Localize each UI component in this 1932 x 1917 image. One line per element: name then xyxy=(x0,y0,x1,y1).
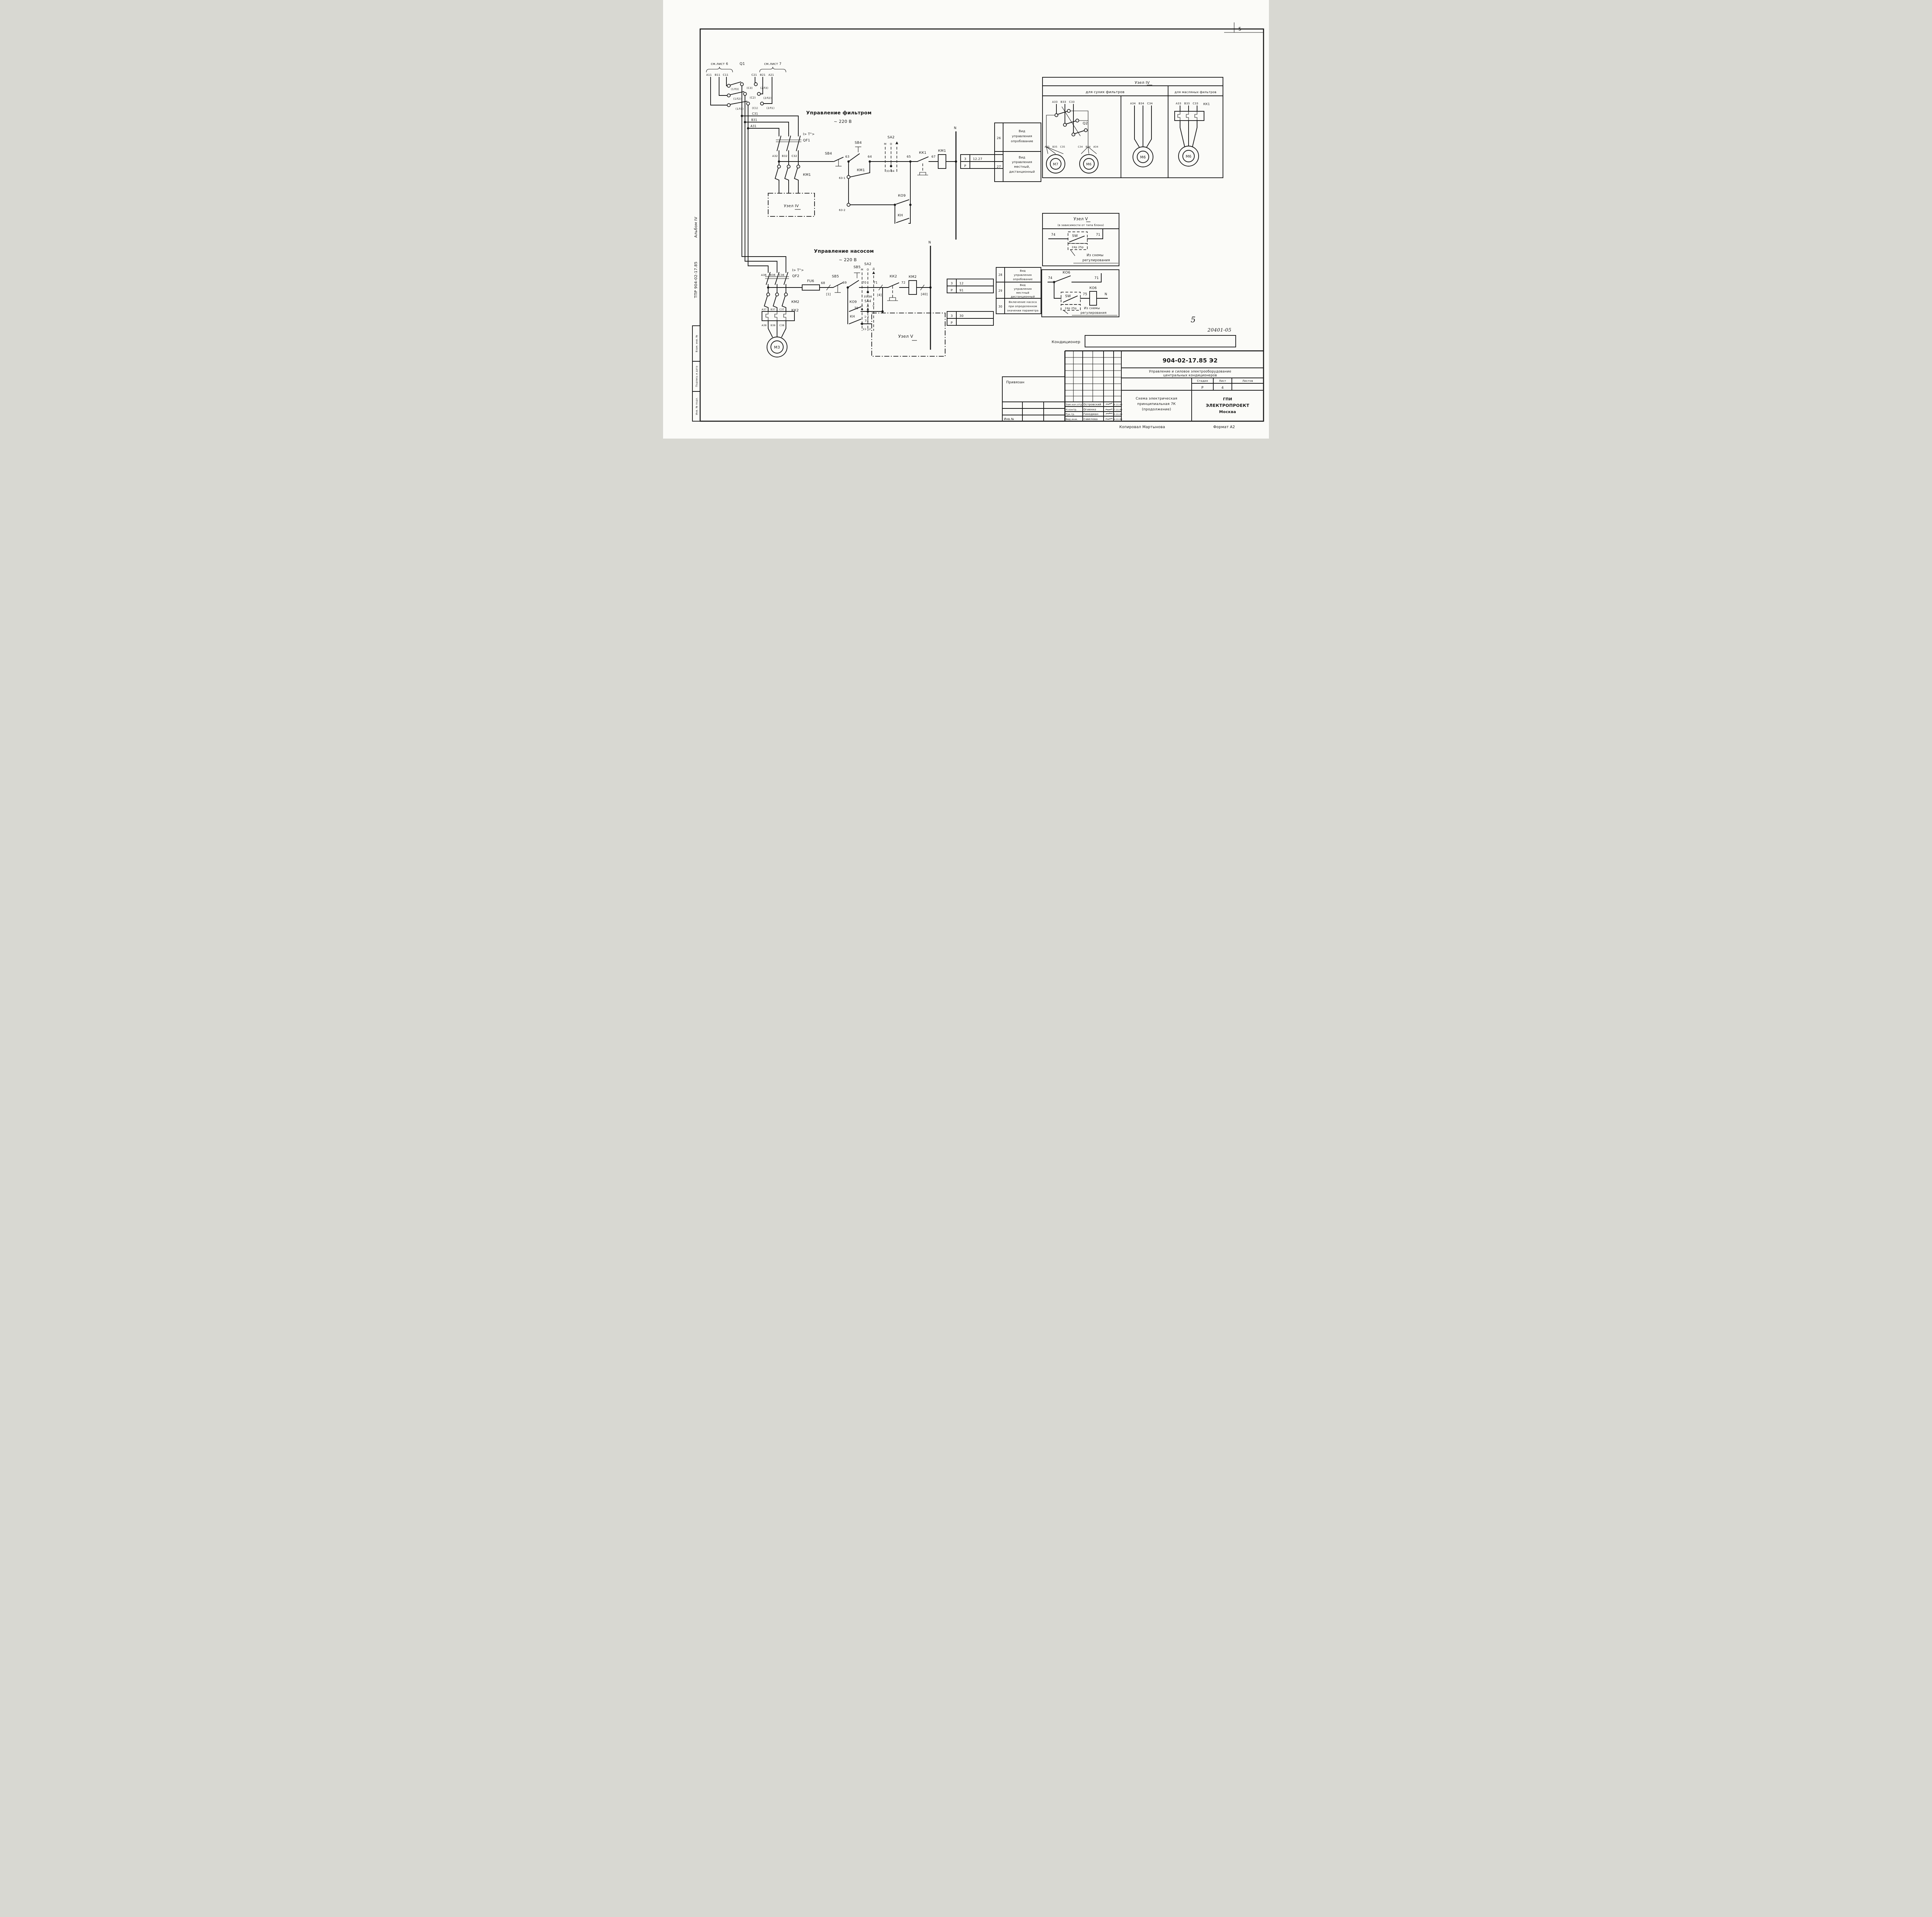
node-65: 65 xyxy=(907,155,911,158)
inv-number-label: Инв.№ xyxy=(1004,417,1014,421)
row-28-num: 28 xyxy=(998,273,1002,277)
m6a-term-a34: А34 xyxy=(1094,146,1099,148)
u4r-b33: В33 xyxy=(1184,102,1190,105)
ref1-r-label: Р xyxy=(951,289,952,292)
u4m-c34: С34 xyxy=(1147,102,1153,105)
phase-buses: С31 В31 А31 xyxy=(741,86,798,270)
sa2-pos-o: О xyxy=(890,143,892,146)
ko6-coil-label: КО6 xyxy=(1090,286,1097,290)
handwritten-code: 20401-05 xyxy=(1207,327,1231,333)
qf2-pole-b36: В36 xyxy=(770,274,776,277)
row-30-line1: Включение насоса xyxy=(1009,301,1037,304)
neutral-n-filter: N xyxy=(954,126,957,130)
row-26-line3: опробование xyxy=(1011,139,1033,143)
sheets-header: Листов xyxy=(1242,379,1253,383)
conditioner-area: 5 20401-05 Кондиционер xyxy=(1052,315,1236,347)
sa2p-m: М xyxy=(861,268,863,271)
node-67: 67 xyxy=(932,155,936,158)
contact-1l1: (1Л1) xyxy=(736,107,744,111)
sa2-pos-m: М xyxy=(884,143,886,146)
kk2-contact-label: КК2 xyxy=(889,275,897,279)
pump-ref-table-1: 3 12 Р 91 xyxy=(947,279,993,293)
date-3: 15.11.83 xyxy=(1112,413,1122,416)
row-30-num: 30 xyxy=(998,305,1002,308)
ko9-contact-label: КО9 xyxy=(898,194,906,198)
row-28-line2: управления xyxy=(1014,274,1032,277)
ko6-sw-label: SW xyxy=(1065,294,1071,298)
node-63-2: 63-2 xyxy=(839,209,845,212)
ko6-note-line1: Из схемы xyxy=(1084,306,1100,310)
u4r-a33: А33 xyxy=(1176,102,1181,105)
ref1-z-label: 3 xyxy=(951,282,952,285)
row-29-line2: управления xyxy=(1014,287,1032,291)
title-block: Привязан Инв.№ xyxy=(1002,351,1264,421)
term-b21: В21 xyxy=(760,73,765,77)
motor-m6b: М6 xyxy=(1140,155,1146,160)
sheet-header: Лист xyxy=(1219,379,1226,383)
term-a21: А21 xyxy=(769,73,774,77)
marker-4: [4] xyxy=(877,293,882,297)
ko6-detail-box: 74 КО6 71 SW 75 КО6 N 24р 25р Из схемы р… xyxy=(1042,270,1119,317)
node-72: 72 xyxy=(901,281,906,284)
name-ostrovsky: Островский xyxy=(1083,403,1101,406)
marker-1: [1] xyxy=(826,293,831,296)
m6a-term-c34: С34 xyxy=(1078,146,1083,148)
contact-1l2: (1Л2) xyxy=(733,97,742,100)
term-c11: С11 xyxy=(723,73,729,77)
ref2-z-label: 3 xyxy=(951,314,952,318)
row-29-line3: местный xyxy=(1016,291,1029,294)
org-line3: Москва xyxy=(1219,410,1236,414)
u4-b33: В33 xyxy=(1061,100,1066,104)
u5-note-line2: регулирования xyxy=(1082,259,1110,262)
km1-aux-label: КМ1 xyxy=(857,168,865,172)
u5-node-74: 74 xyxy=(1051,233,1055,237)
org-line1: ГПИ xyxy=(1223,397,1232,401)
row-30-line3: значении параметра xyxy=(1007,309,1038,312)
row-29-line4: дистанционный xyxy=(1011,295,1035,298)
contact-1l3: (1Л3) xyxy=(731,88,739,91)
filter-control-row: SB4 63 SB4 64 63-1 КМ1 63-2 SA2 М О xyxy=(778,126,957,240)
row-28-line3: опробование xyxy=(1013,278,1033,281)
sb4-no-label: SB4 xyxy=(855,141,862,145)
pump-voltage: ~ 220 В xyxy=(839,257,857,262)
term-b11: В11 xyxy=(715,73,720,77)
uzel4-dry-q2-section: А33 В33 С33 Q2 А35 В35 С35 М7 С34 В34 А3… xyxy=(1045,100,1099,173)
q1-label: Q1 xyxy=(740,62,745,66)
scheme-name-line3: (продолжение) xyxy=(1142,408,1171,412)
m3-term-b38: В38 xyxy=(770,324,776,327)
km1-coil-label: КМ1 xyxy=(938,149,946,153)
sa2-selector-filter: SA2 М О Д 33-34 xyxy=(884,136,898,173)
node-69: 69 xyxy=(843,281,847,284)
m3-term-a38: А38 xyxy=(762,324,767,327)
contact-2l2: (2Л2) xyxy=(764,97,772,100)
drawing-sheet: 5 Взам. инв. № Подпись и дата Инв. № под… xyxy=(663,0,1269,439)
m6a-term-b34: В34 xyxy=(1086,146,1091,148)
side-tpr-label: ТПР 904-02-17.85 xyxy=(694,262,698,299)
pump-ref-table-2: 3 30 Р xyxy=(947,311,993,325)
u4m-a34: А34 xyxy=(1130,102,1136,105)
sb5-no-label: SB5 xyxy=(854,265,861,269)
m7-term-c35: С35 xyxy=(1060,146,1065,148)
motor-m3: М3 xyxy=(774,345,780,350)
signature-4 xyxy=(1105,418,1112,419)
node-74: 74 xyxy=(865,319,869,323)
u4-c33: С33 xyxy=(1069,100,1075,104)
sheet-value: 4 xyxy=(1221,386,1224,390)
qf1-pole-c32: С32 xyxy=(791,155,797,158)
scheme-name-line2: принципиальная 7К xyxy=(1137,402,1176,406)
uzel4-oil-section: А33 В33 С33 КК1 М6 xyxy=(1175,102,1210,166)
corner-page-number: 5 xyxy=(1238,26,1242,32)
doc-code: 904-02-17.85 Э2 xyxy=(1163,357,1218,364)
qf1-release-label: I> T°> xyxy=(803,133,815,136)
row-27-line3: местный, xyxy=(1014,165,1030,168)
ko6-note-line2: регулирования xyxy=(1080,311,1106,315)
stage-table: Стадия Лист Листов Р 4 xyxy=(1192,378,1264,390)
ko6-node-75: 75 xyxy=(1083,293,1087,296)
u4r-c33: С33 xyxy=(1193,102,1199,105)
role-zam-nach: Зам.нач.отд xyxy=(1066,403,1082,406)
node-63: 63 xyxy=(845,155,850,158)
kk2-term-b37: В37 xyxy=(770,308,776,311)
ref-z-value: 12.27 xyxy=(973,157,982,161)
sa2-contact-33-34: 33-34 xyxy=(886,170,895,173)
uzel5-subtitle: (в зависимости от типа блока) xyxy=(1058,224,1104,227)
kk2-term-c37: С37 xyxy=(779,308,784,311)
motor-m7: М7 xyxy=(1053,163,1058,167)
m3-term-c38: С38 xyxy=(779,324,784,327)
contact-2l3: (2Л3) xyxy=(760,87,769,90)
row-26-num: 26 xyxy=(997,136,1001,140)
ko6-neutral-label: N xyxy=(1105,293,1107,296)
filter-title: Управление фильтром xyxy=(806,110,871,116)
name-savelova: Савелова xyxy=(1083,418,1098,421)
u5-node-71: 71 xyxy=(1096,233,1100,237)
fu6-label: FU6 xyxy=(807,279,814,283)
qf2-breaker: А36 В36 С36 I> T°> QF2 xyxy=(761,269,804,293)
see-sheet-6-label: см.лист 6 xyxy=(711,62,728,66)
sa4-d: Д xyxy=(867,304,869,308)
ko6-contact-label: КО6 xyxy=(1063,271,1070,275)
kk1-label: КК1 xyxy=(919,151,926,155)
row-27-line4: дистанционный xyxy=(1009,170,1035,173)
term-c21: С21 xyxy=(752,73,757,77)
sa2-contact-35-36: 35-36 xyxy=(864,295,872,298)
see-sheet-7-label: см.лист 7 xyxy=(764,62,782,66)
ref-z-label: 3 xyxy=(964,157,966,161)
contact-c3: (С3) xyxy=(747,87,753,90)
sb5-nc-label: SB5 xyxy=(832,275,839,279)
conditioner-value-box xyxy=(1085,335,1236,347)
qf2-label: QF2 xyxy=(792,274,799,278)
bus-c31: С31 xyxy=(752,112,758,116)
stamp-inv-podl: Инв. № подл. xyxy=(696,397,698,415)
marker-40: [40] xyxy=(921,293,927,296)
sa4-label: SA4 xyxy=(864,299,871,303)
stage-header: Стадия xyxy=(1197,379,1208,383)
stamp-vzam-inv: Взам. инв. № xyxy=(696,335,698,352)
q1-incoming-switch: см.лист 6 Q1 см.лист 7 А11 В11 С11 С21 В… xyxy=(706,62,786,111)
sa4-c: С xyxy=(872,304,874,308)
uzel4-title: Узел IV xyxy=(1135,81,1150,85)
format-label: Формат А2 xyxy=(1213,425,1235,429)
row-27-num: 27 xyxy=(997,165,1001,168)
uzel4-dry-header: для сухих фильтров xyxy=(1086,90,1125,94)
u4m-b34: В34 xyxy=(1139,102,1145,105)
schematic-canvas: 5 Взам. инв. № Подпись и дата Инв. № под… xyxy=(663,0,1269,439)
name-ogienko: Огиенко xyxy=(1083,408,1096,411)
u4r-kk1-label: КК1 xyxy=(1203,102,1210,106)
filter-voltage: ~ 220 В xyxy=(834,119,852,124)
row-29-num: 29 xyxy=(998,289,1002,293)
sa4-contact-11-12: 11-12 xyxy=(862,328,871,331)
ko6-node-71: 71 xyxy=(1094,276,1099,280)
uzel5-ref-box: Узел V xyxy=(872,313,945,356)
bus-b31: В31 xyxy=(751,118,757,122)
qf1-label: QF1 xyxy=(803,139,810,143)
sheet-frame: 5 Взам. инв. № Подпись и дата Инв. № под… xyxy=(692,22,1264,429)
filter-circuit: Управление фильтром ~ 220 В I> T°> QF1 А… xyxy=(768,110,1041,240)
neutral-n-pump: N xyxy=(929,241,931,245)
node-70: 70 xyxy=(862,281,867,284)
m7-term-b35: В35 xyxy=(1053,146,1058,148)
qf2-pole-a36: А36 xyxy=(761,274,767,277)
kk2-block-label: КК2 xyxy=(791,309,799,313)
qf1-pole-a32: А32 xyxy=(772,155,778,158)
doc-subject-line2: центральных кондиционеров xyxy=(1163,374,1217,378)
filter-info-table: 26 Вид управления опробование 27 Вид упр… xyxy=(995,123,1041,182)
node-63-1: 63-1 xyxy=(839,177,845,180)
term-a11: А11 xyxy=(706,73,712,77)
ko6-node-74: 74 xyxy=(1048,276,1052,280)
q2-label: Q2 xyxy=(1083,122,1088,126)
privyazan-label: Привязан xyxy=(1006,381,1024,384)
row-26-line2: управления xyxy=(1012,134,1032,138)
kk2-term-a37: А37 xyxy=(762,308,767,311)
row-27-line1: Вид xyxy=(1019,156,1026,159)
scheme-name-line1: Схема электрическая xyxy=(1136,397,1177,401)
node-68: 68 xyxy=(821,281,825,285)
sa2-pump-label: SA2 xyxy=(864,262,872,266)
sa2-label: SA2 xyxy=(888,136,895,139)
sb4-nc-label: SB4 xyxy=(825,152,832,156)
org-line2: ЭЛЕКТРОПРОЕКТ xyxy=(1206,403,1250,408)
ref-r-label: Р xyxy=(964,164,966,168)
conditioner-label: Кондиционер xyxy=(1052,340,1080,344)
role-ved-inzh: Вед.инж. xyxy=(1066,418,1078,421)
motor-m6c: М6 xyxy=(1186,155,1192,159)
u4-a33: А33 xyxy=(1052,100,1058,104)
contact-c1: (С1) xyxy=(752,107,758,110)
km1-main-label: КМ1 xyxy=(803,173,811,177)
kn-pump-label: КН xyxy=(850,315,855,319)
row-29-line1: Вид xyxy=(1020,284,1026,287)
u5-sw-label: SW xyxy=(1072,234,1078,238)
row-28-line1: Вид xyxy=(1020,269,1026,272)
side-album-label: Альбом IV xyxy=(694,217,698,238)
u5-note-line1: Из схемы xyxy=(1087,253,1104,257)
qf2-pole-c36: С36 xyxy=(779,274,784,277)
uzel4-oil-header: для масляных фильтров xyxy=(1175,90,1217,94)
date-2: 17.11.83 xyxy=(1112,409,1122,411)
date-1: 16.11.83 xyxy=(1112,404,1122,406)
sa4-contact-1-2: 1-2 xyxy=(864,315,869,318)
pump-power-branch: КМ2 КК2 А37 В37 С37 А38 В38 С38 М3 xyxy=(762,293,799,357)
contact-c2: (С2) xyxy=(750,96,756,99)
node-71: 71 xyxy=(874,281,878,284)
role-ruk-gr: Рук.гр. xyxy=(1066,413,1075,416)
uzel5-title: Узел V xyxy=(1073,217,1088,221)
uzel5-ref-label: Узел V xyxy=(898,334,913,339)
stage-value: Р xyxy=(1201,386,1204,390)
signature-1 xyxy=(1106,403,1112,405)
motor-m6a: М6 xyxy=(1086,163,1092,167)
node-64: 64 xyxy=(868,155,872,158)
row-27-line2: управления xyxy=(1012,160,1032,164)
pump-circuit: Управление насосом ~ 220 В А36 В36 С36 I… xyxy=(761,241,1041,357)
name-ginodman: Гинодман xyxy=(1083,413,1099,416)
kn-contact-label: КН xyxy=(898,214,903,218)
sa2p-o: О xyxy=(867,268,869,271)
pump-title: Управление насосом xyxy=(814,248,874,254)
signature-3 xyxy=(1106,413,1112,414)
ref1-z-value: 12 xyxy=(959,282,964,285)
u5-plug-label: 24р 25р xyxy=(1072,246,1084,249)
km2-main-label: КМ2 xyxy=(791,300,799,304)
node-79: 79 xyxy=(854,306,859,310)
uzel5-detail-box: Узел V (в зависимости от типа блока) 74 … xyxy=(1043,213,1119,266)
row-30-line2: при определенном xyxy=(1009,305,1037,308)
kk1-contact: КК1 67 xyxy=(910,151,938,175)
contact-2l1: (2Л1) xyxy=(767,107,775,110)
pump-info-table: 28 Вид управления опробование 29 Вид упр… xyxy=(996,267,1041,314)
ref2-z-value: 30 xyxy=(959,314,964,318)
role-n-kontr: Н.контр. xyxy=(1066,408,1077,411)
row-26-line1: Вид xyxy=(1019,129,1026,133)
m7-term-a35: А35 xyxy=(1045,146,1050,148)
km1-main-contacts: КМ1 Узел IV xyxy=(768,165,815,216)
stamp-podpis-data: Подпись и дата xyxy=(696,366,698,387)
signature-2 xyxy=(1105,409,1112,410)
km2-coil-label: КМ2 xyxy=(909,275,917,279)
copied-by-label: Копировал Мартынова xyxy=(1119,425,1165,429)
doc-subject-line1: Управление и силовое электрооборудование xyxy=(1149,370,1231,374)
sa2p-d: Д xyxy=(872,267,875,270)
sa4-a: А xyxy=(861,304,863,308)
uzel4-ref-label: Узел IV xyxy=(784,204,799,208)
qf1-breaker: I> T°> QF1 А32 В32 С32 xyxy=(772,133,815,165)
date-4: 14.11.83 xyxy=(1112,418,1122,421)
ko6-plug-label: 24р 25р xyxy=(1065,307,1077,310)
uzel4-dry-m6-section: А34 В34 С34 М6 xyxy=(1130,102,1153,167)
qf1-pole-b32: В32 xyxy=(782,155,787,158)
handwritten-page: 5 xyxy=(1191,315,1196,324)
ref2-r-label: Р xyxy=(951,321,952,325)
bus-a31: А31 xyxy=(750,124,756,128)
qf2-release-label: I> T°> xyxy=(792,269,804,272)
uzel4-detail-box: Узел IV для сухих фильтров для масляных … xyxy=(1043,77,1223,178)
ko9-pump-label: КО9 xyxy=(850,300,857,304)
ref1-r-value: 91 xyxy=(959,289,964,292)
